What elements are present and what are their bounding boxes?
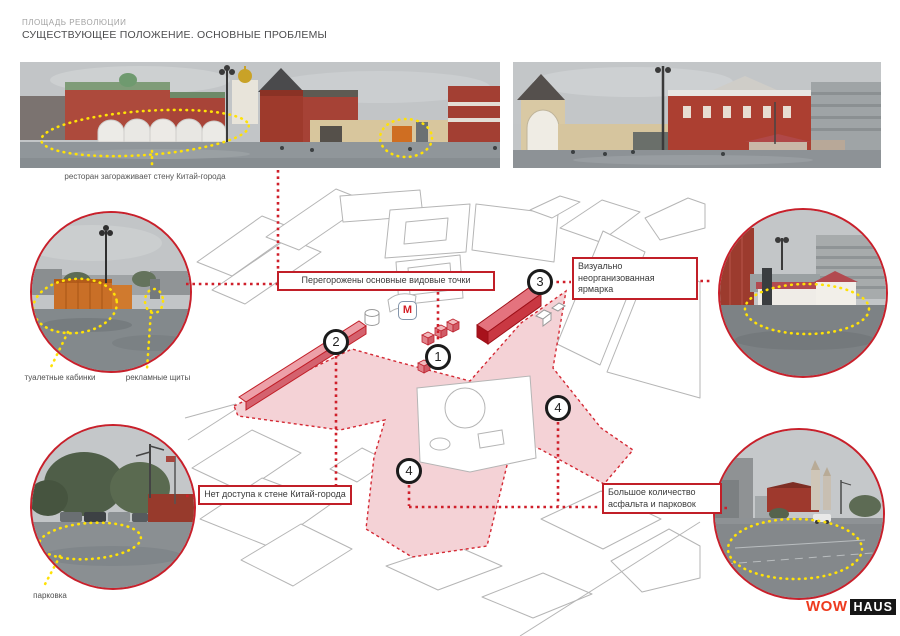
- marker-2: 2: [323, 329, 349, 355]
- photo-parking: [30, 424, 196, 590]
- photo-toilet-cabins: ;: [30, 211, 192, 373]
- problem-label-wall-access: Нет доступа к стене Китай-города: [198, 485, 352, 505]
- problem-label-asphalt: Большое количество асфальта и парковок: [602, 483, 722, 514]
- photo-parking-image: [32, 426, 194, 588]
- highlight-ellipse-parking: [38, 519, 142, 562]
- marker-1: 1: [425, 344, 451, 370]
- highlight-ellipse-billboard: [145, 289, 163, 313]
- panorama-right-image: [513, 62, 881, 168]
- label-billboards: рекламные щиты: [118, 373, 198, 382]
- panorama-photo-left: [20, 62, 500, 168]
- highlight-ellipse-kiosk: [380, 119, 432, 157]
- presentation-board: ПЛОЩАДЬ РЕВОЛЮЦИИ СУЩЕСТВУЮЩЕЕ ПОЛОЖЕНИЕ…: [0, 0, 900, 636]
- garden-island: [417, 376, 536, 472]
- panorama-caption: ресторан загораживает стену Китай-города: [60, 172, 230, 181]
- highlight-ellipse-asphalt: [728, 519, 862, 579]
- highlight-ellipse-fair: [745, 284, 869, 334]
- photo-toilet-cabins-image: ;: [32, 213, 190, 371]
- asphalt-zone: [234, 291, 633, 557]
- photo-asphalt: [713, 428, 885, 600]
- gray-kiosks: [536, 303, 565, 326]
- project-name: ПЛОЩАДЬ РЕВОЛЮЦИИ: [22, 18, 126, 27]
- photo-fair: [718, 208, 888, 378]
- marker-4-center: 4: [396, 458, 422, 484]
- photo-fair-image: [720, 210, 886, 376]
- red-bar-fair: [477, 287, 541, 344]
- panorama-left-image: [20, 62, 500, 168]
- highlight-ellipse-toilets: [32, 275, 120, 337]
- wowhaus-logo: WOW HAUS: [806, 598, 896, 615]
- problem-label-fair: Визуально неорганизованная ярмарка: [572, 257, 698, 300]
- logo-wow: WOW: [806, 598, 847, 615]
- label-parking: парковка: [20, 591, 80, 600]
- red-leader-lines: [186, 170, 728, 508]
- highlight-ellipse-restaurant: [40, 104, 251, 162]
- logo-haus: HAUS: [850, 599, 895, 615]
- problem-label-viewpoints: Перегорожены основные видовые точки: [277, 271, 495, 291]
- page-title: СУЩЕСТВУЮЩЕЕ ПОЛОЖЕНИЕ. ОСНОВНЫЕ ПРОБЛЕМ…: [22, 29, 327, 41]
- panorama-photo-right: [513, 62, 881, 168]
- marker-4-right: 4: [545, 395, 571, 421]
- photo-asphalt-image: [715, 430, 883, 598]
- marker-3: 3: [527, 269, 553, 295]
- metro-icon: М: [398, 301, 417, 320]
- round-kiosk: [365, 310, 379, 326]
- label-toilet-cabins: туалетные кабинки: [14, 373, 106, 382]
